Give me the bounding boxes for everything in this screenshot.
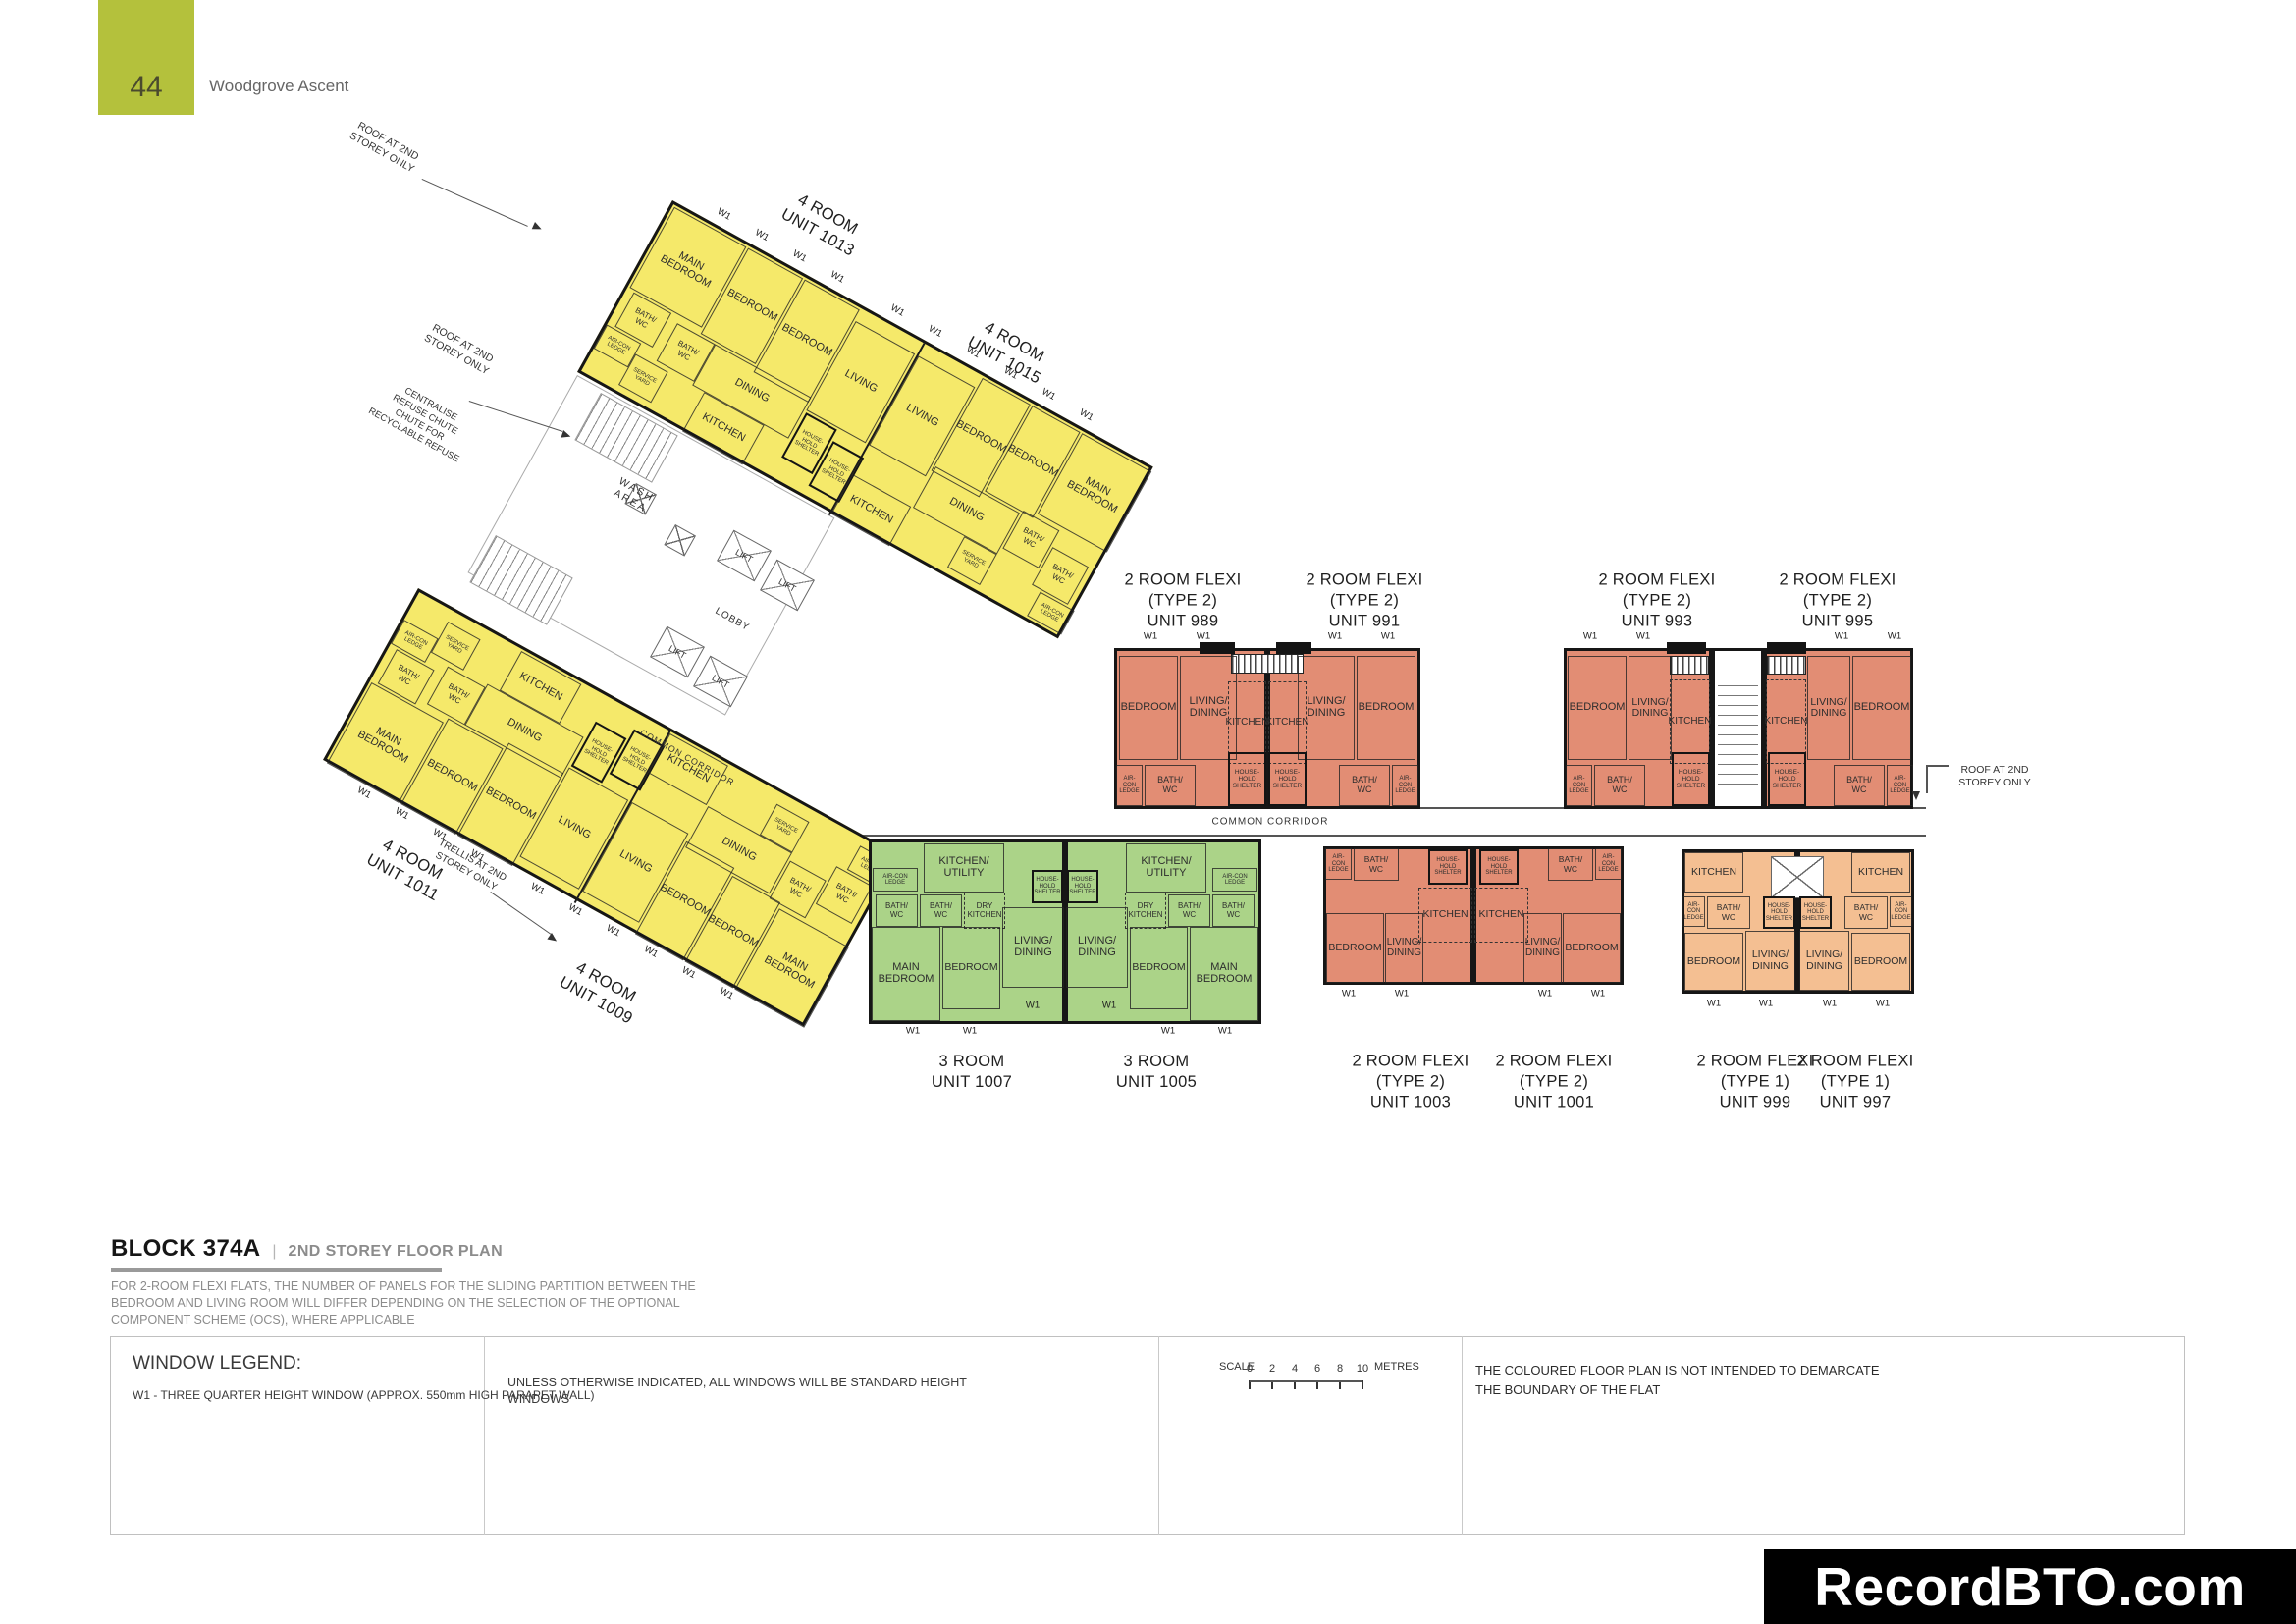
room-air-con: AIR-CON LEDGE <box>1325 848 1352 880</box>
room-main: MAIN BEDROOM <box>1190 927 1258 1021</box>
window-w1-label: W1 <box>1707 999 1721 1009</box>
room-bath: BATH/ WC <box>1212 894 1255 927</box>
wall-stub <box>1667 642 1706 654</box>
room-service: SERVICE YARD <box>431 622 481 671</box>
window-w1-label: W1 <box>1395 989 1409 1000</box>
window-w1-label: W1 <box>1197 631 1210 642</box>
room-bath: BATH/ WC <box>1834 765 1885 806</box>
unit-title-1003: 2 ROOM FLEXI (TYPE 2) UNIT 1003 <box>1352 1052 1468 1113</box>
window-w1-label: W1 <box>1876 999 1890 1009</box>
room-air-con: AIR-CON LEDGE <box>1212 868 1257 892</box>
room-living: LIVING/ DINING <box>1385 913 1423 983</box>
window-w1-label: W1 <box>566 901 584 918</box>
window-legend-title: WINDOW LEGEND: <box>133 1353 301 1375</box>
wall-stub <box>1276 642 1311 654</box>
scale-tick: 10 <box>1357 1363 1368 1375</box>
room-living: LIVING/ DINING <box>1002 907 1064 988</box>
window-w1-label: W1 <box>1759 999 1773 1009</box>
leader-arrowhead <box>532 222 543 233</box>
leader-line <box>1926 766 1928 793</box>
annotation-refuse-chute: CENTRALISE REFUSE CHUTE CHUTE FOR RECYCL… <box>366 375 478 465</box>
unit-title-1005: 3 ROOM UNIT 1005 <box>1116 1052 1197 1093</box>
room-house: HOUSE- HOLD SHELTER <box>1799 896 1832 929</box>
window-w1-label: W1 <box>1040 386 1057 403</box>
room-house: HOUSE- HOLD SHELTER <box>1479 849 1519 885</box>
scale-tick: 8 <box>1337 1363 1343 1375</box>
room-living: LIVING/ DINING <box>1629 656 1672 760</box>
window-w1-label: W1 <box>753 227 771 244</box>
unit-title-995: 2 ROOM FLEXI (TYPE 2) UNIT 995 <box>1779 570 1896 632</box>
legend-divider <box>1462 1336 1463 1535</box>
room-bath: BATH/ WC <box>1168 894 1210 927</box>
room-house: HOUSE- HOLD SHELTER <box>1672 752 1710 806</box>
window-w1-label: W1 <box>1381 631 1395 642</box>
room-bath: BATH/ WC <box>1707 896 1750 929</box>
room-bedroom: BEDROOM <box>1851 933 1910 991</box>
legend-divider <box>1158 1336 1159 1535</box>
room-kitchen: KITCHEN/ UTILITY <box>924 843 1004 893</box>
window-w1-label: W1 <box>1823 999 1837 1009</box>
room-air-con: AIR-CON LEDGE <box>1595 848 1622 880</box>
room-air-con: AIR-CON LEDGE <box>873 868 918 892</box>
watermark: RecordBTO.com <box>1764 1549 2296 1624</box>
room-bath: BATH/ WC <box>1339 765 1390 806</box>
room-kitchen: KITCHEN <box>1418 888 1472 943</box>
scale-bar-line <box>1250 1380 1362 1382</box>
room-air-con: AIR-CON LEDGE <box>1392 765 1418 806</box>
drying-rack <box>1767 656 1806 675</box>
unit-title-1009: 4 ROOM UNIT 1009 <box>556 954 646 1030</box>
title-separator: | <box>272 1243 276 1261</box>
unit-title-991: 2 ROOM FLEXI (TYPE 2) UNIT 991 <box>1306 570 1422 632</box>
scale-tick: 2 <box>1269 1363 1275 1375</box>
window-w1-label: W1 <box>1102 1001 1116 1011</box>
window-w1-label: W1 <box>1026 1001 1040 1011</box>
window-w1-label: W1 <box>1328 631 1342 642</box>
window-w1-label: W1 <box>1591 989 1605 1000</box>
window-w1-label: W1 <box>1218 1026 1232 1037</box>
room-dry: DRY KITCHEN <box>1125 893 1166 929</box>
wing-units-1011-1009: AIR-CON LEDGEBATH/ WCSERVICE YARDKITCHEN… <box>323 588 899 1026</box>
window-w1-label: W1 <box>1835 631 1848 642</box>
window-w1-label: W1 <box>1636 631 1650 642</box>
void-shaft <box>1771 856 1824 898</box>
room-living: LIVING/ DINING <box>1298 656 1355 760</box>
room-bedroom: BEDROOM <box>1357 656 1415 760</box>
room-bath: BATH/ WC <box>1844 896 1888 929</box>
window-w1-label: W1 <box>1161 1026 1175 1037</box>
room-bedroom: BEDROOM <box>942 927 1000 1009</box>
windows-note: UNLESS OTHERWISE INDICATED, ALL WINDOWS … <box>507 1375 969 1408</box>
window-w1-label: W1 <box>1342 989 1356 1000</box>
common-corridor-label: COMMON CORRIDOR <box>1212 816 1329 829</box>
boundary-note: THE COLOURED FLOOR PLAN IS NOT INTENDED … <box>1475 1361 1899 1400</box>
room-house: HOUSE- HOLD SHELTER <box>1768 752 1806 806</box>
room-bedroom: BEDROOM <box>1130 927 1188 1009</box>
room-air-con: AIR-CON LEDGE <box>1682 896 1705 927</box>
watermark-text: RecordBTO.com <box>1814 1555 2245 1618</box>
room-house: HOUSE- HOLD SHELTER <box>1067 870 1098 903</box>
room-living: LIVING/ DINING <box>1066 907 1128 988</box>
flexi-note: FOR 2-ROOM FLEXI FLATS, THE NUMBER OF PA… <box>111 1278 747 1328</box>
room-living: LIVING/ DINING <box>1807 656 1850 760</box>
window-w1-label: W1 <box>605 923 622 940</box>
floor-plan-page: 44 Woodgrove Ascent MAIN BEDROOMBEDROOMB… <box>0 0 2296 1624</box>
window-w1-label: W1 <box>791 248 809 265</box>
drying-rack <box>1670 656 1709 675</box>
room-air-con: AIR-CON LEDGE <box>1566 765 1592 806</box>
scale-unit: METRES <box>1374 1361 1419 1373</box>
block-title-row: BLOCK 374A | 2ND STOREY FLOOR PLAN <box>111 1235 503 1263</box>
room-bedroom: BEDROOM <box>1684 933 1743 991</box>
room-bedroom: BEDROOM <box>1568 656 1627 760</box>
leader-arrowhead <box>1912 791 1920 800</box>
scale-tick: 4 <box>1292 1363 1298 1375</box>
room-bath: BATH/ WC <box>1594 765 1645 806</box>
window-w1-label: W1 <box>1888 631 1901 642</box>
room-air-con: AIR-CON LEDGE <box>1116 765 1143 806</box>
window-w1-label: W1 <box>906 1026 920 1037</box>
window-w1-label: W1 <box>888 302 906 319</box>
scale-tick: 0 <box>1247 1363 1253 1375</box>
window-w1-label: W1 <box>529 881 547 897</box>
leader-arrowhead <box>547 933 559 945</box>
unit-title-997: 2 ROOM FLEXI (TYPE 1) UNIT 997 <box>1796 1052 1913 1113</box>
room-air-con: AIR-CON LEDGE <box>1890 896 1912 927</box>
room-bath: BATH/ WC <box>876 894 918 927</box>
window-w1-label: W1 <box>716 206 733 223</box>
room-kitchen: KITCHEN <box>1851 852 1910 893</box>
room-house: HOUSE- HOLD SHELTER <box>1763 896 1795 929</box>
room-bedroom: BEDROOM <box>1326 913 1384 983</box>
floor-plan: MAIN BEDROOMBEDROOMBEDROOMLIVINGBATH/ WC… <box>0 0 2296 1218</box>
room-main: MAIN BEDROOM <box>872 927 940 1021</box>
room-bath: BATH/ WC <box>1145 765 1196 806</box>
room-living: LIVING/ DINING <box>1523 913 1562 983</box>
unit-title-993: 2 ROOM FLEXI (TYPE 2) UNIT 993 <box>1598 570 1715 632</box>
window-w1-label: W1 <box>1538 989 1552 1000</box>
room-bath: BATH/ WC <box>1354 848 1399 881</box>
window-w1-label: W1 <box>1583 631 1597 642</box>
legend-divider <box>484 1336 485 1535</box>
room-bedroom: BEDROOM <box>1563 913 1621 983</box>
block-title: BLOCK 374A <box>111 1235 260 1263</box>
window-w1-label: W1 <box>927 323 944 340</box>
room-kitchen: KITCHEN <box>1474 888 1528 943</box>
room-air-con: AIR-CON LEDGE <box>1887 765 1913 806</box>
annotation-roof-top: ROOF AT 2ND STOREY ONLY <box>347 119 423 176</box>
drying-rack <box>1231 654 1304 674</box>
plan-title: 2ND STOREY FLOOR PLAN <box>289 1243 504 1261</box>
room-house: HOUSE- HOLD SHELTER <box>1428 849 1468 885</box>
room-house: HOUSE- HOLD SHELTER <box>1228 752 1266 806</box>
annotation-roof-right: ROOF AT 2ND STOREY ONLY <box>1958 764 2031 789</box>
window-w1-label: W1 <box>1144 631 1157 642</box>
unit-title-1013: 4 ROOM UNIT 1013 <box>777 187 868 262</box>
window-w1-label: W1 <box>828 269 846 286</box>
unit-title-1007: 3 ROOM UNIT 1007 <box>932 1052 1012 1093</box>
leader-line <box>490 892 553 937</box>
room-living: LIVING/ DINING <box>1799 931 1849 991</box>
window-w1-label: W1 <box>1078 407 1095 424</box>
room-bedroom: BEDROOM <box>1852 656 1911 760</box>
room-bath: BATH/ WC <box>920 894 962 927</box>
room-dry: DRY KITCHEN <box>964 893 1005 929</box>
wall-stub <box>1767 642 1806 654</box>
room-kitchen: KITCHEN <box>1684 852 1743 893</box>
room-kitchen: KITCHEN/ UTILITY <box>1126 843 1206 893</box>
staircase-between-993-995 <box>1718 685 1758 787</box>
unit-title-989: 2 ROOM FLEXI (TYPE 2) UNIT 989 <box>1124 570 1241 632</box>
room-living: LIVING/ DINING <box>1745 931 1795 991</box>
unit-title-1001: 2 ROOM FLEXI (TYPE 2) UNIT 1001 <box>1495 1052 1612 1113</box>
scale-tick: 6 <box>1314 1363 1320 1375</box>
window-w1-label: W1 <box>963 1026 977 1037</box>
wall-stub <box>1200 642 1235 654</box>
leader-line <box>422 179 528 227</box>
room-bedroom: BEDROOM <box>1119 656 1178 760</box>
annotation-roof-left: ROOF AT 2ND STOREY ONLY <box>422 321 498 378</box>
room-house: HOUSE- HOLD SHELTER <box>1268 752 1307 806</box>
leader-line <box>469 401 562 432</box>
room-bath: BATH/ WC <box>1548 848 1593 881</box>
room-house: HOUSE- HOLD SHELTER <box>1032 870 1063 903</box>
leader-line <box>1926 765 1949 767</box>
title-rule <box>111 1268 442 1272</box>
